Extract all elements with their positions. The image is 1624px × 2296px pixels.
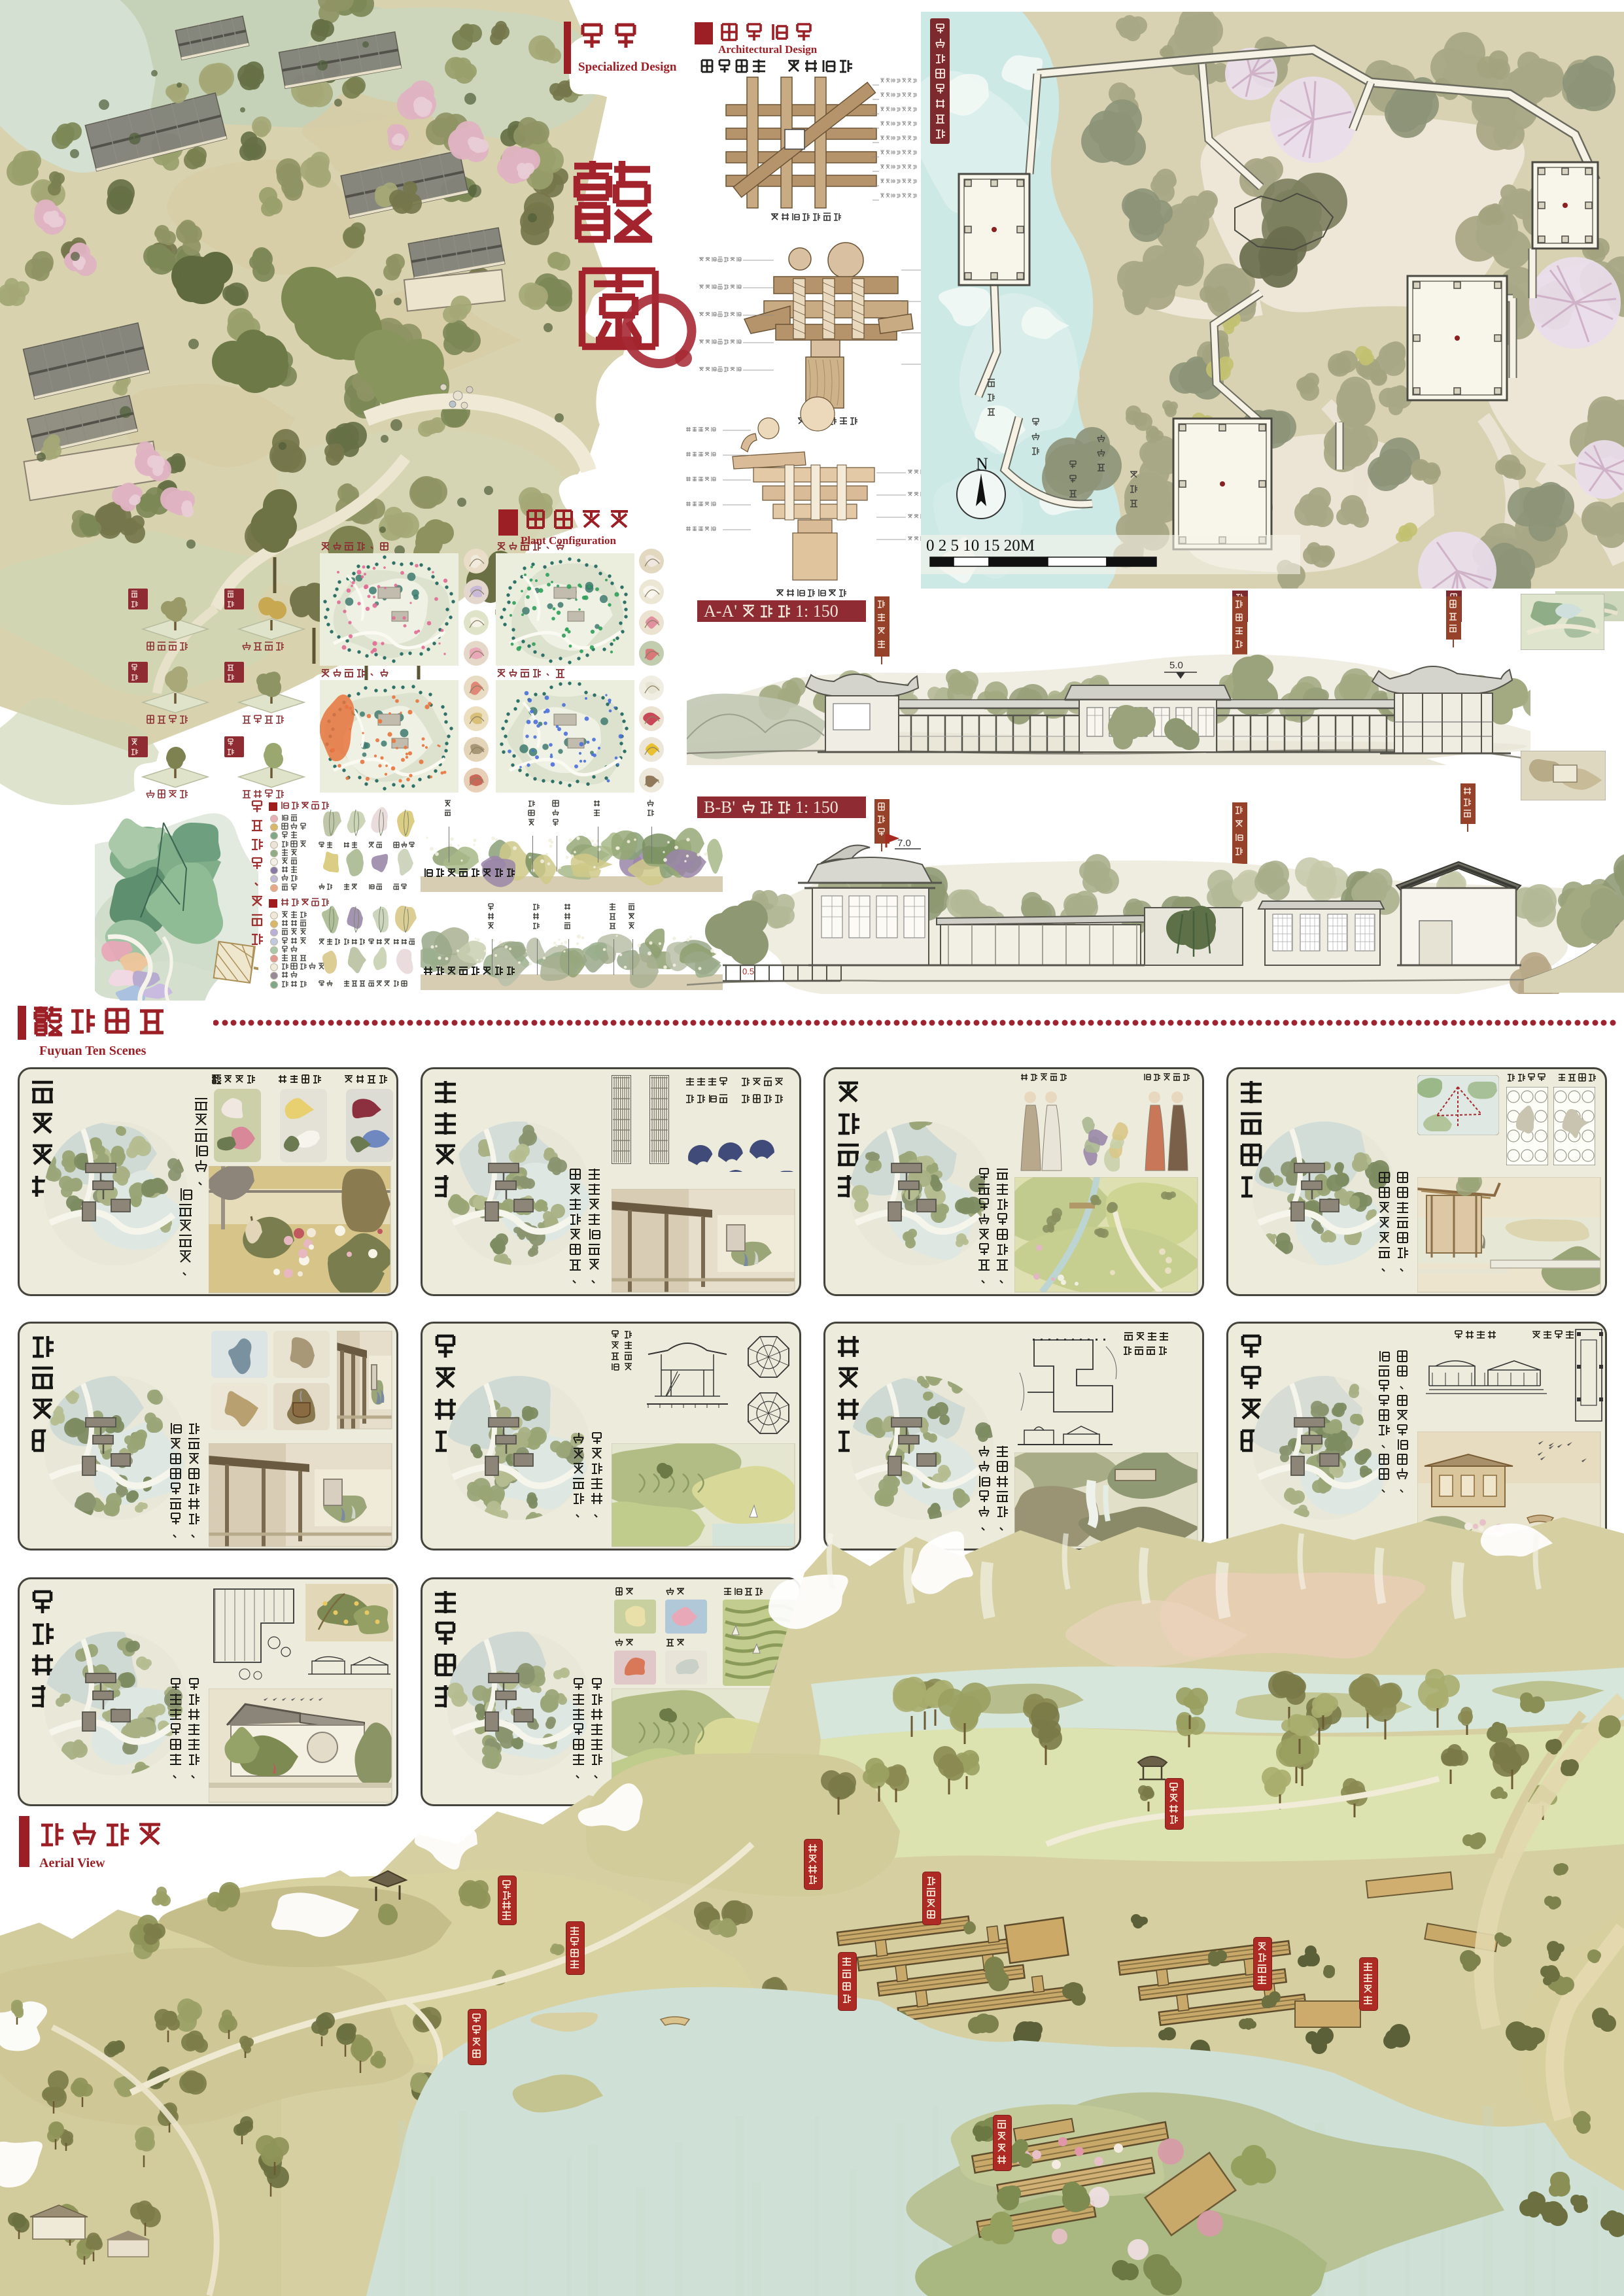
svg-text:N: N (976, 454, 988, 473)
svg-text:1: 150: 1: 150 (795, 798, 838, 817)
svg-text:B-B': B-B' (704, 798, 735, 817)
svg-text:7.0: 7.0 (897, 838, 911, 849)
svg-text:0.5: 0.5 (742, 967, 754, 976)
svg-text:1: 150: 1: 150 (795, 602, 838, 621)
svg-text:0 2 5 10 15: 0 2 5 10 15 20M (926, 537, 1035, 555)
svg-text:5.0: 5.0 (1169, 660, 1183, 671)
svg-text:A-A': A-A' (704, 602, 737, 621)
